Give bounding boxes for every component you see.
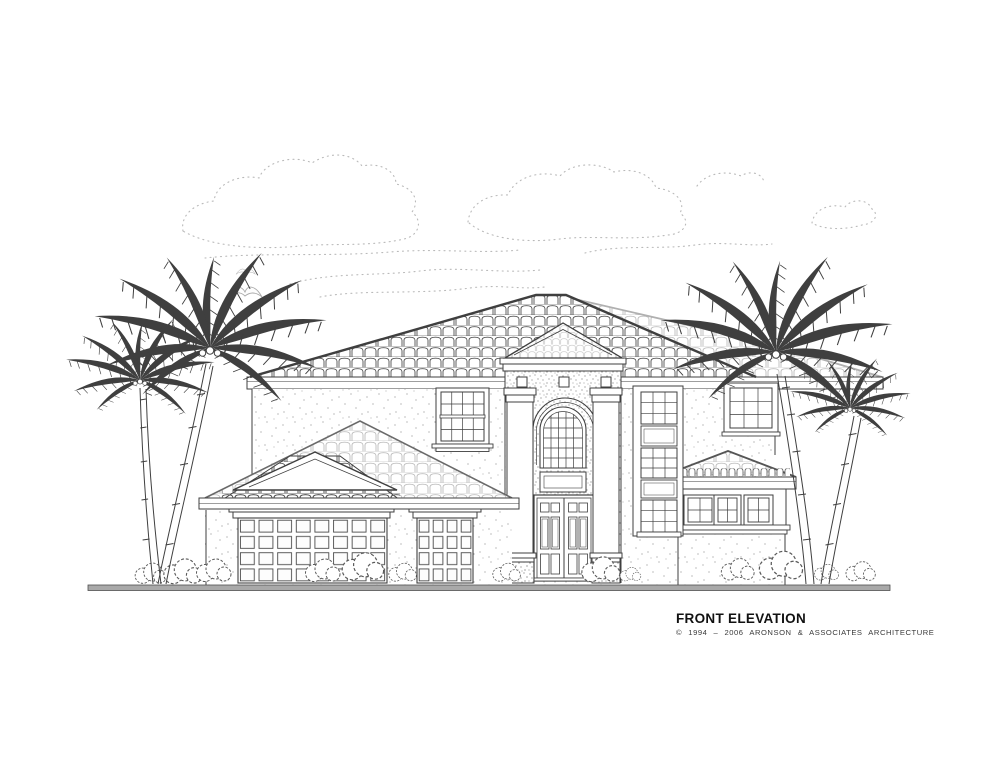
right-upper-window: [722, 383, 780, 436]
bay-cornice: [672, 525, 790, 530]
clouds: [183, 155, 876, 297]
tower-cornice: [500, 358, 626, 364]
transom-panel: [540, 472, 586, 492]
entry-tower: [500, 323, 626, 583]
drawing-copyright: © 1994 – 2006 ARONSON & ASSOCIATES ARCHI…: [676, 628, 934, 637]
left-upper-window: [432, 388, 493, 452]
window-sill: [722, 432, 780, 436]
ground-line: [88, 585, 890, 591]
window-sill: [432, 444, 493, 448]
stair-window-stack: [633, 386, 683, 537]
bay-ridge-tiles: [666, 469, 790, 478]
palm-trunks: [140, 364, 213, 584]
bay-windows: [684, 495, 773, 525]
drawing-title: FRONT ELEVATION: [676, 611, 806, 626]
single-garage-door[interactable]: [417, 518, 473, 583]
elevation-drawing-canvas: FRONT ELEVATION © 1994 – 2006 ARONSON & …: [0, 0, 1000, 772]
arched-transom-window: [540, 405, 586, 468]
elevation-drawing: [0, 0, 1000, 772]
